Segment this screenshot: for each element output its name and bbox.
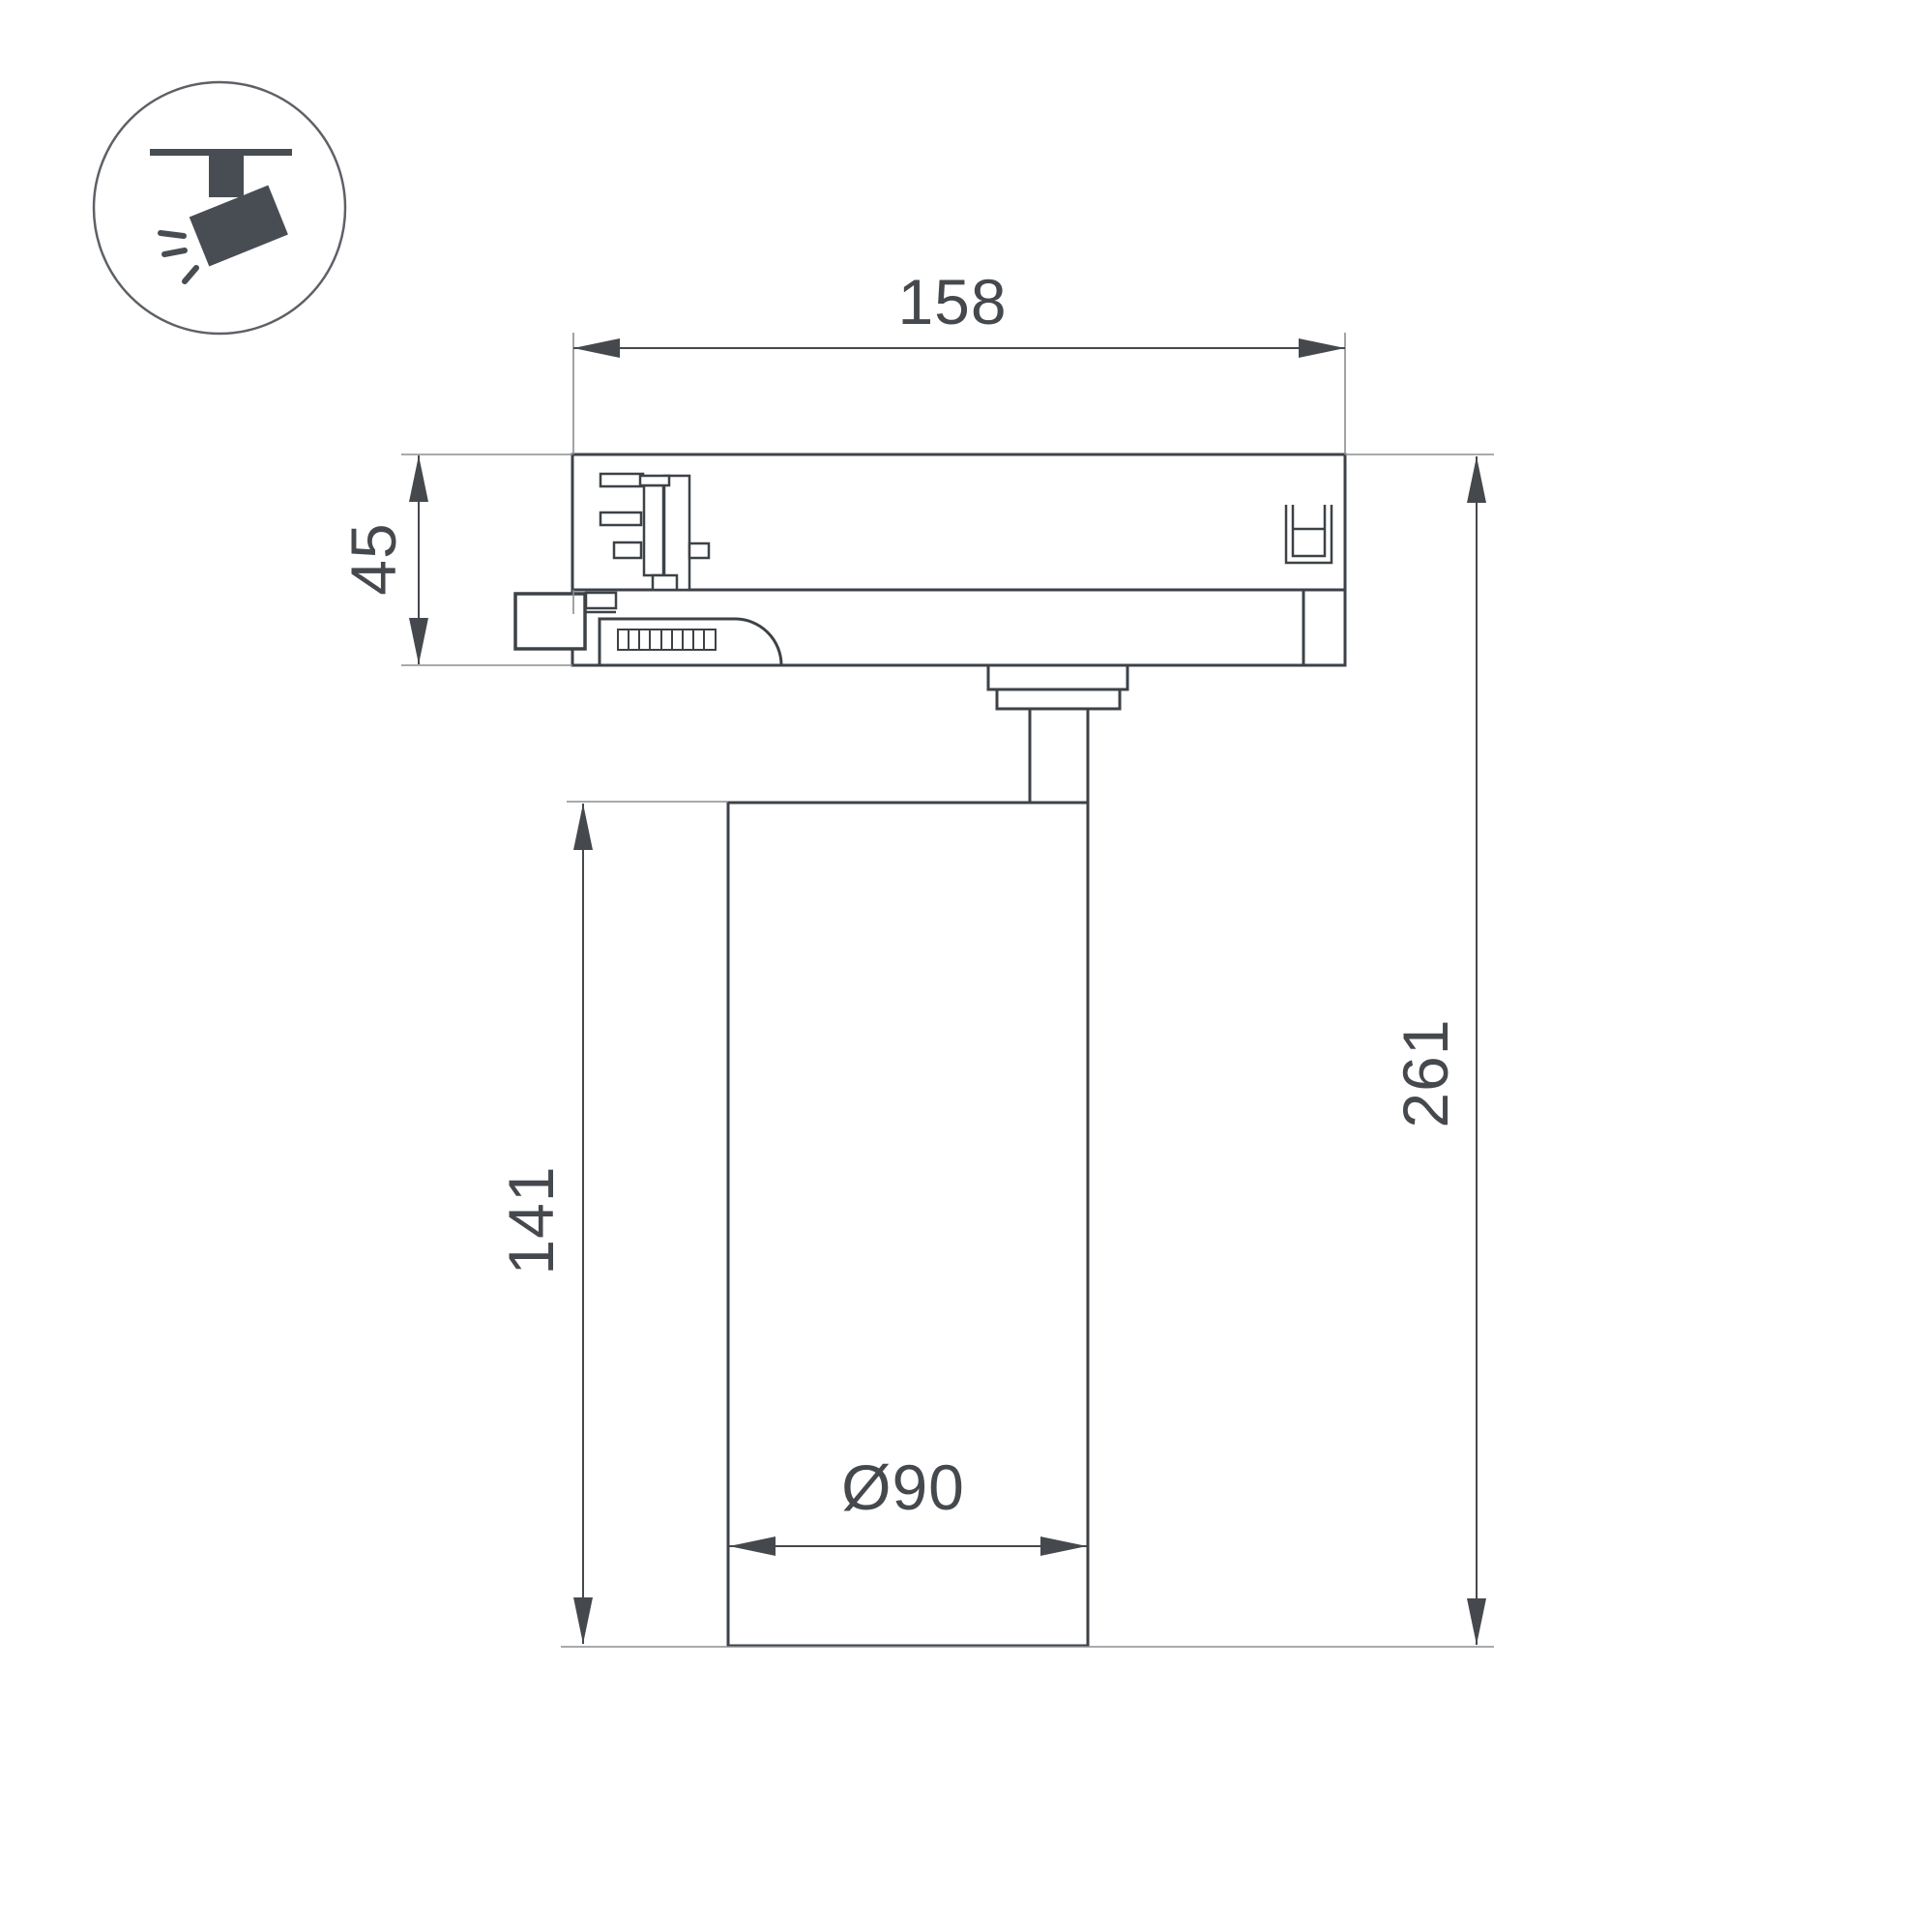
neck-stem	[1030, 709, 1088, 803]
track-spotlight-icon	[150, 149, 292, 281]
contact-bar	[664, 476, 689, 590]
track-adapter-lower	[572, 590, 1345, 665]
arrowhead-down	[409, 618, 428, 664]
arrowhead-up	[409, 455, 428, 502]
dimension-value-158: 158	[897, 266, 1007, 337]
dimension-body-height: 141	[495, 804, 593, 1644]
arrowhead-left	[573, 338, 620, 358]
icon-lamp-body	[190, 186, 288, 267]
icon-stem	[209, 153, 244, 197]
light-ray-icon	[161, 233, 184, 236]
contact-lug	[689, 543, 709, 558]
product-type-icon	[94, 82, 345, 334]
swivel-neck	[988, 665, 1127, 803]
neck-plate-lower	[997, 689, 1120, 709]
dimension-adapter-height: 45	[337, 455, 428, 664]
contact-cap	[640, 476, 669, 485]
icon-light-rays	[161, 233, 196, 281]
arrowhead-right	[1299, 338, 1345, 358]
light-ray-icon	[164, 250, 185, 254]
contact-finger	[600, 474, 643, 486]
arrowhead-down	[1467, 1598, 1486, 1645]
arrowhead-down	[573, 1597, 593, 1644]
latch-lever	[515, 594, 585, 649]
dimension-value-261: 261	[1390, 1018, 1461, 1127]
dimension-value-141: 141	[495, 1165, 567, 1274]
contact-finger	[614, 542, 641, 558]
dimension-value-diameter: Ø90	[841, 1451, 965, 1523]
dimension-value-45: 45	[337, 522, 409, 595]
light-ray-icon	[185, 268, 196, 281]
dimension-total-height: 261	[1390, 456, 1486, 1645]
dimension-drawing-page: 158 45 141 261 Ø90	[0, 0, 1932, 1932]
contact-stem	[644, 485, 663, 575]
contact-finger	[600, 512, 641, 525]
arrowhead-up	[1467, 456, 1486, 503]
technical-drawing-canvas: 158 45 141 261 Ø90	[0, 0, 1932, 1932]
arrowhead-up	[573, 804, 593, 850]
contact-foot	[653, 575, 677, 590]
neck-plate-upper	[988, 665, 1127, 689]
dimension-adapter-width: 158	[573, 266, 1345, 358]
